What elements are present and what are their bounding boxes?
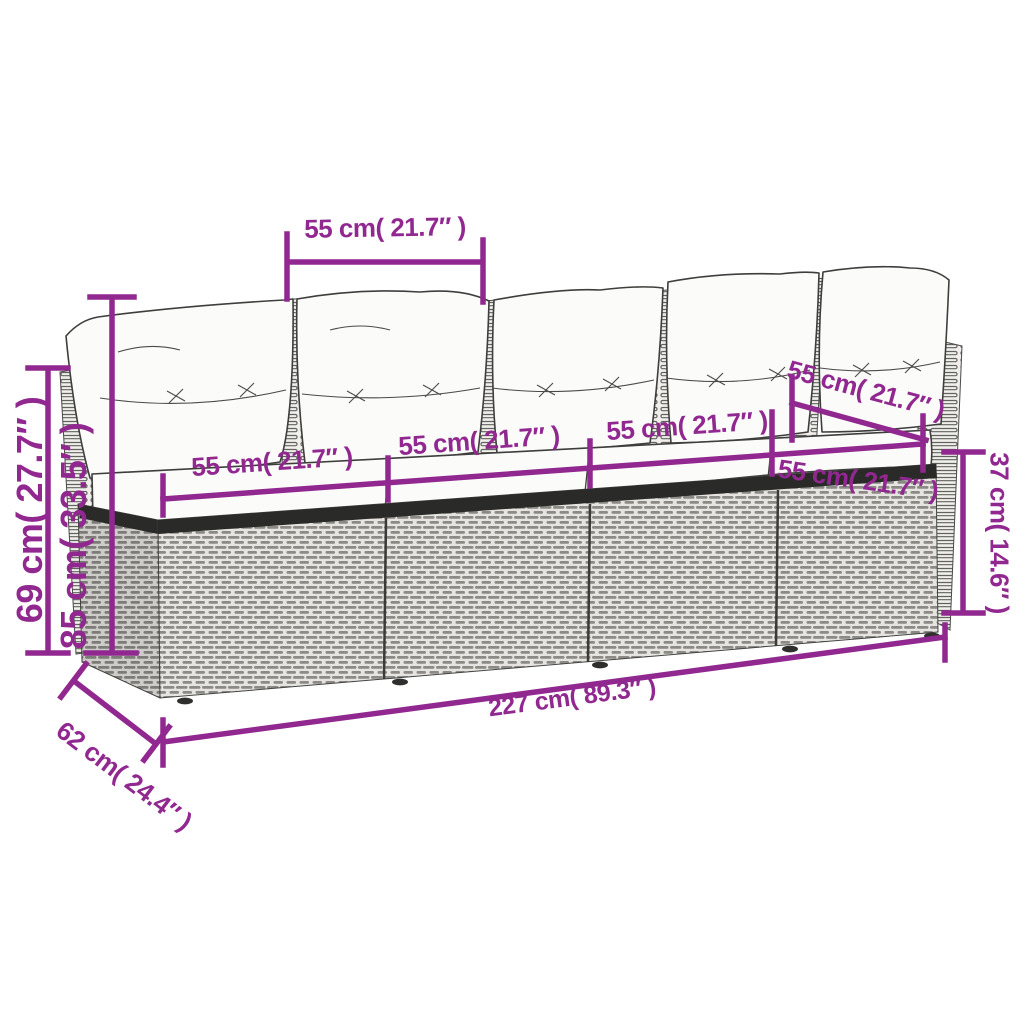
sofa-sketch [0,0,1024,1024]
product-dimension-diagram: 55 cm( 21.7″ ) 69 cm( 27.7″ ) 85 cm( 33.… [0,0,1024,1024]
dim-label-base-height: 37 cm( 14.6″ ) [984,452,1015,614]
dim-label-back-cushion-width: 55 cm( 21.7″ ) [304,211,466,245]
dim-label-backrest-height: 69 cm( 27.7″ ) [9,397,51,623]
dim-label-total-height: 85 cm( 33.5″ ) [53,423,95,649]
